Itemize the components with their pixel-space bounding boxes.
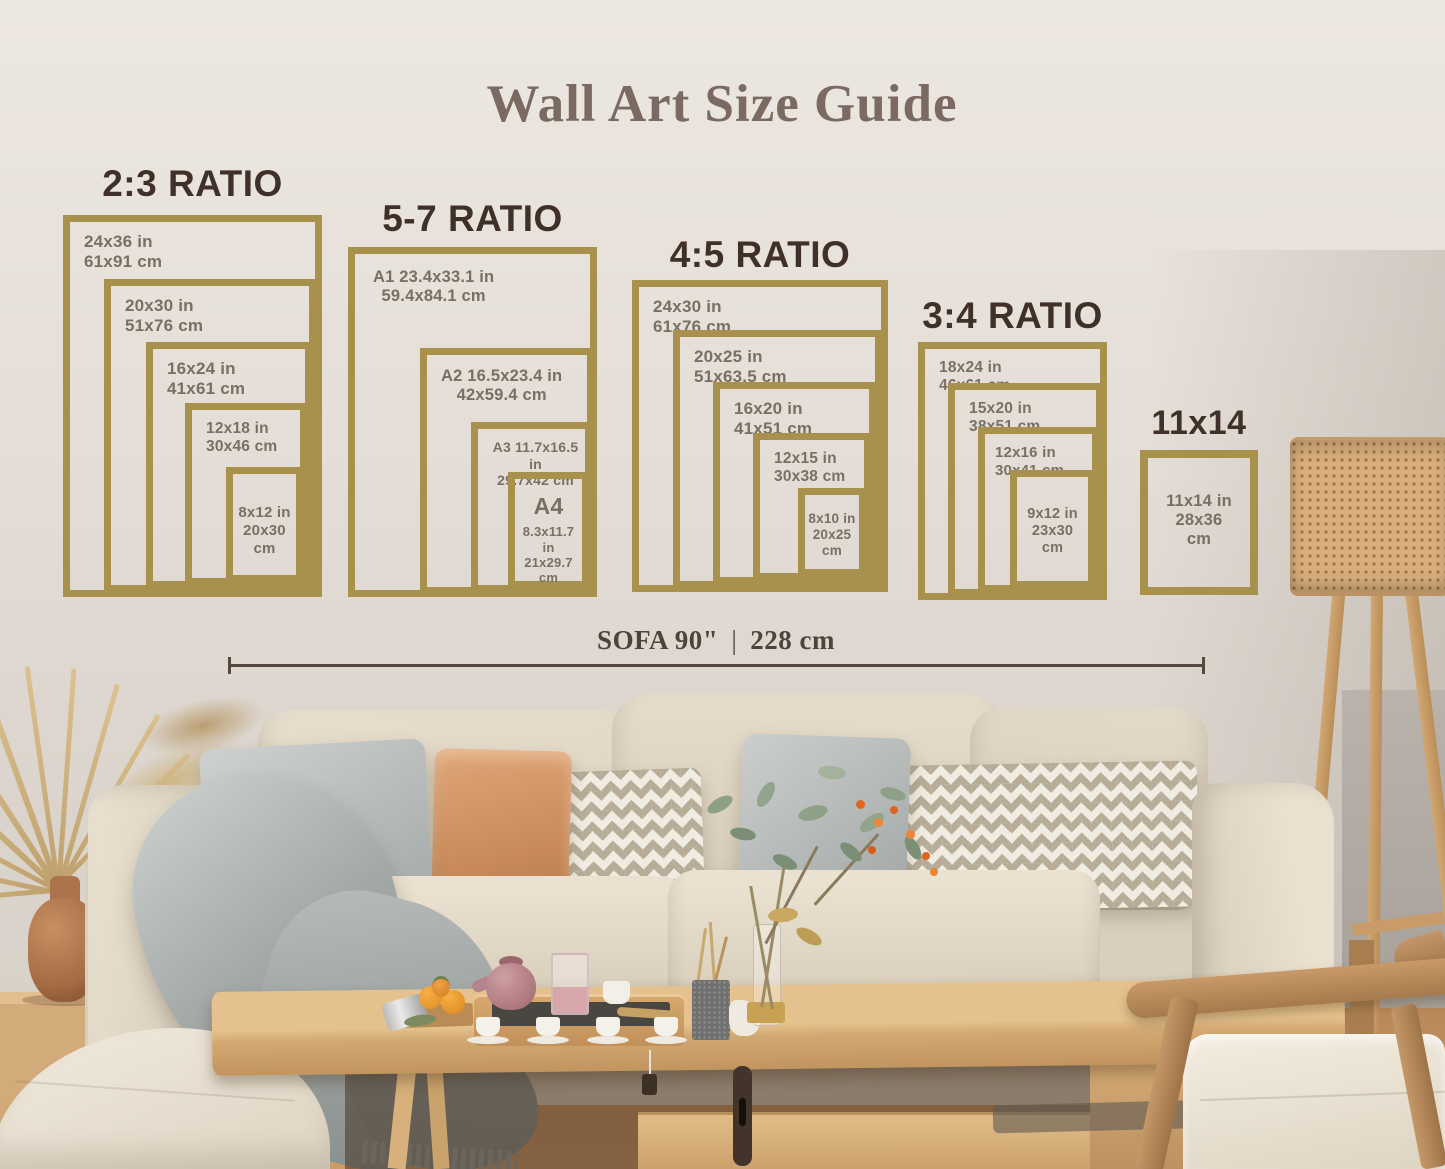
- table-handle-hole: [739, 1098, 746, 1126]
- frame-label: A2 16.5x23.4 in 42x59.4 cm: [441, 367, 562, 406]
- utensil-holder: [692, 980, 730, 1040]
- frame-label: 9x12 in 23x30 cm: [1025, 506, 1081, 557]
- persimmon-fruit: [432, 976, 450, 997]
- berry: [906, 830, 915, 839]
- white-cup-on-tray: [603, 981, 630, 1004]
- berry: [922, 852, 930, 860]
- measure-tick-right: [1202, 657, 1205, 674]
- sofa-measure-line: [228, 664, 1205, 667]
- measure-separator: |: [731, 625, 737, 656]
- glass-cup: [551, 953, 589, 1015]
- size-cm: 30x38 cm: [774, 468, 845, 486]
- group-heading: 5-7 RATIO: [382, 198, 563, 240]
- sofa-measure-inches: SOFA 90": [597, 625, 718, 655]
- sofa-measure-label: SOFA 90"|228 cm: [597, 625, 835, 656]
- saucer: [587, 1036, 629, 1044]
- size-cm: 21x29.7 cm: [517, 555, 581, 586]
- size-cm: 61x91 cm: [84, 252, 162, 272]
- saucer: [467, 1036, 509, 1044]
- tea-cup: [654, 1017, 678, 1036]
- ratio-group-3-4: 3:4 RATIO 18x24 in 46x61 cm 15x20 in 38x…: [918, 342, 1107, 600]
- frame-8x10: 8x10 in 20x25 cm: [798, 488, 866, 576]
- frame-label: 8x10 in 20x25 cm: [806, 511, 858, 559]
- size-in: A1 23.4x33.1 in: [373, 268, 494, 287]
- berry: [874, 818, 883, 827]
- wall-art-size-guide-poster: Wall Art Size Guide 2:3 RATIO 24x36 in 6…: [0, 0, 1445, 1169]
- size-in: 24x36 in: [84, 232, 162, 252]
- frame-11x14: 11x14 in 28x36 cm: [1140, 450, 1258, 595]
- berry: [868, 846, 876, 854]
- size-in: 12x15 in: [774, 450, 845, 468]
- frame-9x12: 9x12 in 23x30 cm: [1010, 470, 1095, 588]
- size-in: 8x10 in: [806, 511, 858, 527]
- size-in: 8x12 in: [237, 504, 293, 522]
- size-in: 24x30 in: [653, 297, 731, 317]
- size-cm: 28x36 cm: [1165, 511, 1233, 550]
- size-in: 12x16 in: [995, 444, 1064, 462]
- size-cm: 20x25 cm: [806, 527, 858, 559]
- tea-cup: [476, 1017, 500, 1036]
- group-heading: 11x14: [1151, 404, 1246, 443]
- group-heading: 4:5 RATIO: [670, 234, 851, 276]
- size-cm: 23x30 cm: [1025, 523, 1081, 557]
- frame-label: 11x14 in 28x36 cm: [1165, 492, 1233, 550]
- berry: [890, 806, 898, 814]
- size-name: A4: [517, 493, 581, 520]
- size-in: A2 16.5x23.4 in: [441, 367, 562, 386]
- tag: [642, 1074, 657, 1095]
- size-in: 9x12 in: [1025, 506, 1081, 523]
- page-title: Wall Art Size Guide: [487, 74, 958, 134]
- size-group-11x14: 11x14 11x14 in 28x36 cm: [1140, 450, 1258, 595]
- tag-string: [649, 1050, 651, 1076]
- berry: [930, 868, 938, 876]
- frame-a4: A4 8.3x11.7 in 21x29.7 cm: [508, 472, 589, 588]
- group-heading: 2:3 RATIO: [102, 163, 283, 205]
- size-in: 20x30 in: [125, 296, 203, 316]
- size-in: A3 11.7x16.5 in: [486, 439, 585, 472]
- sofa-measure-cm: 228 cm: [750, 625, 835, 655]
- ratio-group-5-7: 5-7 RATIO A1 23.4x33.1 in 59.4x84.1 cm A…: [348, 247, 597, 597]
- size-cm: 42x59.4 cm: [441, 386, 562, 405]
- size-in: 11x14 in: [1165, 492, 1233, 511]
- size-in: 15x20 in: [969, 400, 1040, 418]
- gold-vase-band: [747, 1002, 785, 1023]
- teapot-body: [486, 963, 536, 1010]
- size-in: 12x18 in: [206, 420, 277, 438]
- size-in: 8.3x11.7 in: [517, 524, 581, 555]
- ratio-group-2-3: 2:3 RATIO 24x36 in 61x91 cm 20x30 in 51x…: [63, 215, 322, 597]
- size-in: 16x20 in: [734, 399, 812, 419]
- saucer: [527, 1036, 569, 1044]
- frame-label: 12x15 in 30x38 cm: [774, 450, 845, 487]
- size-cm: 41x61 cm: [167, 379, 245, 399]
- size-cm: 51x76 cm: [125, 316, 203, 336]
- tea-cup: [536, 1017, 560, 1036]
- measure-tick-left: [228, 657, 231, 674]
- group-heading: 3:4 RATIO: [922, 295, 1103, 337]
- frame-label: 20x30 in 51x76 cm: [125, 296, 203, 336]
- frame-label: 24x36 in 61x91 cm: [84, 232, 162, 272]
- frame-label: 16x24 in 41x61 cm: [167, 359, 245, 399]
- berry: [856, 800, 865, 809]
- size-in: 18x24 in: [939, 359, 1010, 377]
- tea-cup: [596, 1017, 620, 1036]
- frame-8x12: 8x12 in 20x30 cm: [226, 467, 303, 582]
- ratio-group-4-5: 4:5 RATIO 24x30 in 61x76 cm 20x25 in 51x…: [632, 280, 888, 592]
- size-in: 20x25 in: [694, 347, 787, 367]
- frame-label: A1 23.4x33.1 in 59.4x84.1 cm: [373, 268, 494, 307]
- frame-label: 8x12 in 20x30 cm: [237, 504, 293, 557]
- frame-label: A4 8.3x11.7 in 21x29.7 cm: [517, 493, 581, 585]
- lamp-rattan-shade: [1290, 437, 1445, 596]
- size-cm: 20x30 cm: [237, 522, 293, 557]
- size-cm: 30x46 cm: [206, 438, 277, 456]
- size-cm: 59.4x84.1 cm: [373, 287, 494, 306]
- frame-label: 12x18 in 30x46 cm: [206, 420, 277, 457]
- saucer: [645, 1036, 687, 1044]
- size-in: 16x24 in: [167, 359, 245, 379]
